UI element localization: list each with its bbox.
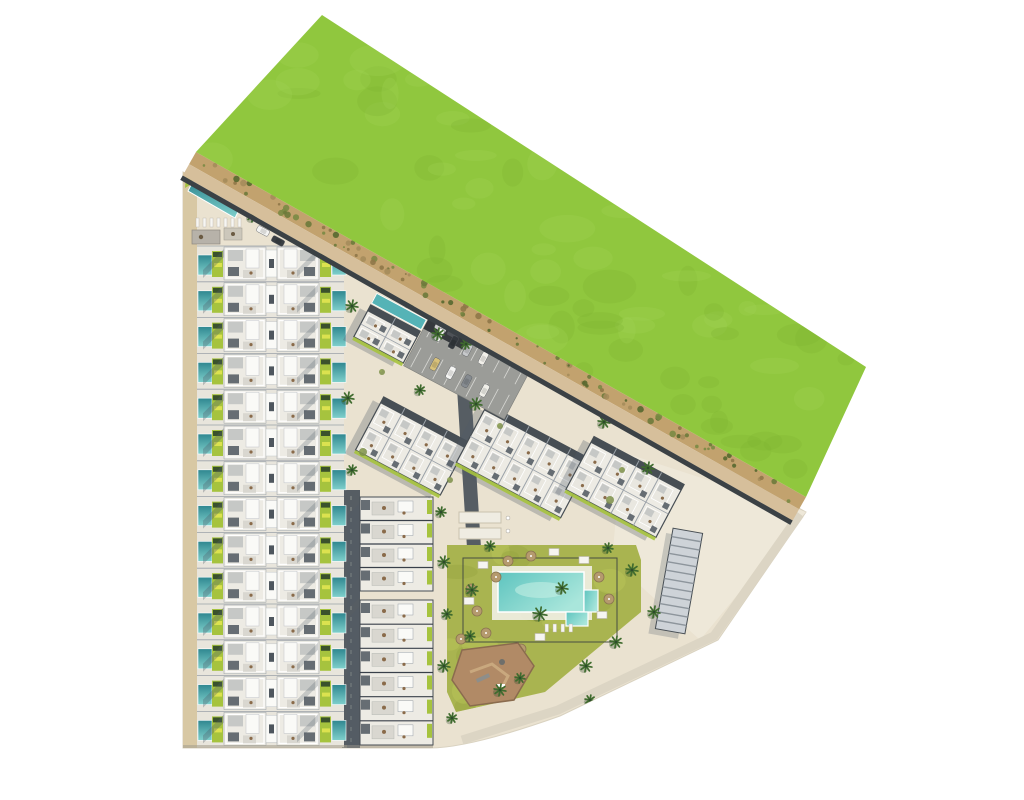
terrace	[243, 735, 256, 743]
roof-volume	[246, 679, 259, 698]
sun-lounger	[322, 370, 330, 374]
stair-core	[269, 295, 274, 304]
roof-volume	[246, 392, 259, 411]
palm-trunk	[443, 665, 446, 668]
palm-trunk	[585, 665, 588, 668]
terrace-furniture	[291, 271, 294, 274]
field-mottle	[711, 327, 739, 340]
palm-trunk	[471, 589, 474, 592]
shrub-speckle	[343, 246, 345, 248]
terrace-furniture	[382, 506, 386, 510]
table	[199, 235, 203, 239]
field-mottle	[502, 158, 523, 186]
field-mottle	[701, 396, 721, 413]
palm-trunk	[631, 569, 634, 572]
planter	[321, 359, 330, 364]
planter	[321, 574, 330, 579]
bush	[447, 477, 453, 483]
terrace-furniture	[402, 687, 405, 690]
townhouse-row	[197, 425, 346, 459]
field-mottle	[471, 253, 506, 285]
shrub-speckle	[685, 433, 689, 437]
townhouse-row	[197, 532, 346, 566]
shrub-speckle	[360, 256, 366, 262]
planted-edge	[427, 627, 432, 641]
west-footpath	[183, 172, 197, 748]
umbrella-pole	[530, 555, 532, 557]
cabana	[464, 598, 474, 605]
cabana	[549, 549, 559, 556]
roof-volume	[284, 392, 297, 411]
roof-dark-section	[228, 625, 239, 634]
townhouse-row	[197, 497, 346, 531]
roof-volume	[398, 501, 413, 512]
roof-volume	[398, 725, 413, 736]
roof-volume	[398, 604, 413, 615]
palm-trunk	[469, 635, 472, 638]
field-mottle	[527, 148, 557, 180]
roof-terrace-gray	[228, 250, 243, 261]
terrace-furniture	[291, 343, 294, 346]
terrace-furniture	[402, 663, 405, 666]
palm-trunk	[607, 547, 610, 550]
roof-volume	[398, 701, 413, 712]
umbrella-pole	[485, 632, 487, 634]
field-mottle	[838, 352, 855, 365]
roof-dark-section	[361, 627, 370, 637]
sun-lounger	[322, 335, 330, 339]
terrace-furniture	[249, 594, 252, 597]
terrace	[243, 306, 256, 314]
private-pool	[332, 362, 346, 382]
roof-terrace-gray	[228, 357, 243, 368]
terrace	[243, 700, 256, 708]
roof-terrace-gray	[228, 536, 243, 547]
sun-lounger	[553, 624, 557, 632]
roof-dark-section	[361, 547, 370, 557]
palm-trunk	[647, 467, 650, 470]
sun-lounger	[238, 218, 241, 227]
roof-volume	[246, 356, 259, 375]
roof-volume	[398, 525, 413, 536]
terrace-furniture	[249, 450, 252, 453]
roof-terrace-gray	[228, 501, 243, 512]
stair-core	[269, 689, 274, 698]
roof-volume	[246, 285, 259, 304]
field-mottle	[662, 270, 711, 281]
sun-lounger	[545, 624, 549, 632]
townhouse-row	[197, 461, 346, 495]
shrub-speckle	[598, 385, 602, 389]
terrace-furniture	[291, 701, 294, 704]
field-mottle	[601, 204, 646, 219]
pool-umbrella	[503, 556, 513, 566]
roof-volume	[398, 628, 413, 639]
roof-dark-section	[228, 589, 239, 598]
sun-lounger	[322, 478, 330, 482]
terrace	[243, 664, 256, 672]
private-pool	[332, 720, 346, 740]
terrace-furniture	[382, 633, 386, 637]
shrub-speckle	[405, 273, 407, 275]
sun-lounger	[322, 621, 330, 625]
field-mottle	[795, 324, 827, 354]
roof-dark-section	[361, 676, 370, 686]
terrace-furniture	[291, 629, 294, 632]
shrub-speckle	[759, 476, 763, 480]
roof-dark-section	[228, 518, 239, 527]
shrub-speckle	[401, 278, 405, 282]
terrace-furniture	[249, 486, 252, 489]
planted-edge	[427, 571, 432, 585]
townhouse-row	[197, 676, 346, 710]
umbrella-pole	[460, 638, 462, 640]
terrace-furniture	[402, 614, 405, 617]
seat	[506, 529, 510, 533]
townhouse-row	[197, 604, 346, 638]
field-mottle	[744, 304, 785, 315]
field-mottle	[698, 376, 719, 388]
planter	[321, 324, 330, 329]
pool-umbrella	[472, 606, 482, 616]
shrub-speckle	[244, 192, 248, 196]
townhouse-row	[197, 640, 346, 674]
shrub-speckle	[391, 266, 394, 269]
terrace-furniture	[382, 530, 386, 534]
roof-volume	[398, 548, 413, 559]
private-pool	[332, 327, 346, 347]
roof-terrace-gray	[228, 465, 243, 476]
stair-core	[269, 331, 274, 340]
shrub-speckle	[283, 211, 287, 215]
shrub-speckle	[423, 292, 429, 298]
umbrella-pole	[598, 576, 600, 578]
shrub-speckle	[487, 319, 491, 323]
shrub-speckle	[460, 312, 463, 315]
private-pool	[332, 470, 346, 490]
shrub-speckle	[475, 313, 481, 319]
terrace-furniture	[291, 594, 294, 597]
field-mottle	[740, 440, 771, 462]
roof-dark-section	[228, 446, 239, 455]
sun-lounger	[231, 218, 234, 227]
terrace-furniture	[249, 343, 252, 346]
bush-highlight	[607, 497, 610, 500]
shrub-speckle	[347, 248, 350, 251]
cast-shadow	[347, 606, 360, 764]
shrub-speckle	[603, 394, 609, 400]
pool-umbrella	[481, 628, 491, 638]
sun-lounger	[322, 299, 330, 303]
roof-volume	[246, 607, 259, 626]
planter	[321, 288, 330, 293]
field-mottle	[701, 418, 733, 435]
terrace	[243, 413, 256, 421]
shrub-speckle	[625, 399, 628, 402]
roof-dark-section	[228, 553, 239, 562]
field-mottle	[583, 270, 636, 304]
field-mottle	[455, 150, 497, 161]
shrub-speckle	[723, 456, 727, 460]
shrub-speckle	[225, 179, 227, 181]
palm-trunk	[603, 421, 606, 424]
field-mottle	[452, 197, 475, 209]
shrub-speckle	[695, 445, 699, 449]
townhouse-row	[197, 282, 346, 316]
table	[231, 232, 235, 236]
shrub-speckle	[346, 240, 351, 245]
roof-dark-section	[361, 651, 370, 661]
roof-terrace-gray	[228, 572, 243, 583]
palm-trunk	[653, 611, 656, 614]
roof-dark-section	[228, 410, 239, 419]
stair-core	[269, 617, 274, 626]
roof-dark-section	[228, 732, 239, 741]
roof-terrace-gray	[228, 644, 243, 655]
roof-volume	[246, 571, 259, 590]
planted-edge	[427, 524, 432, 538]
pergola	[192, 230, 220, 244]
roof-volume	[398, 652, 413, 663]
field-mottle	[530, 259, 561, 284]
terrace-furniture	[291, 450, 294, 453]
field-mottle	[532, 243, 556, 255]
palm-trunk	[437, 333, 440, 336]
palm-trunk	[539, 613, 542, 616]
palm-trunk	[440, 511, 443, 514]
roof-terrace-gray	[228, 429, 243, 440]
terrace-furniture	[291, 486, 294, 489]
terrace-furniture	[402, 558, 405, 561]
shrub-speckle	[567, 364, 569, 366]
terrace	[243, 592, 256, 600]
private-pool	[332, 649, 346, 669]
sun-lounger	[322, 693, 330, 697]
terrace	[243, 449, 256, 457]
planter	[321, 431, 330, 436]
terrace-furniture	[402, 711, 405, 714]
roof-volume	[284, 428, 297, 447]
roof-dark-section	[361, 500, 370, 510]
shrub-speckle	[628, 406, 632, 410]
palm-trunk	[446, 613, 449, 616]
terrace-furniture	[249, 737, 252, 740]
terrace-furniture	[402, 511, 405, 514]
shrub-speckle	[622, 402, 625, 405]
terrace-furniture	[291, 415, 294, 418]
palm-trunk	[351, 305, 354, 308]
stair-core	[269, 402, 274, 411]
roof-volume	[284, 571, 297, 590]
sun-lounger	[322, 549, 330, 553]
play-equipment	[499, 659, 505, 665]
planted-edge	[427, 603, 432, 617]
terrace-furniture	[249, 522, 252, 525]
field-mottle	[526, 325, 559, 340]
terrace-furniture	[382, 730, 386, 734]
sun-lounger	[224, 218, 227, 227]
shrub-speckle	[460, 306, 466, 312]
field-mottle	[451, 118, 491, 132]
planter	[321, 717, 330, 722]
roof-dark-section	[361, 571, 370, 581]
bush-highlight	[360, 449, 363, 452]
palm-trunk	[519, 677, 522, 680]
apartment-block	[347, 600, 433, 764]
stair-core	[269, 438, 274, 447]
sun-lounger	[322, 657, 330, 661]
stair-core	[269, 510, 274, 519]
sun-lounger	[569, 624, 573, 632]
stair-core	[269, 545, 274, 554]
roof-volume	[246, 535, 259, 554]
townhouse-row	[197, 389, 346, 423]
cabana	[579, 557, 589, 564]
shrub-speckle	[322, 226, 326, 230]
roof-volume	[246, 321, 259, 340]
cabana	[478, 562, 488, 569]
cast-shadow	[347, 503, 360, 610]
townhouse-row	[197, 353, 346, 387]
bush-highlight	[620, 468, 622, 470]
sun-lounger	[322, 442, 330, 446]
roof-terrace-gray	[228, 322, 243, 333]
palm-trunk	[475, 403, 478, 406]
sun-lounger	[210, 218, 213, 227]
terrace-furniture	[291, 522, 294, 525]
field-mottle	[429, 235, 446, 264]
field-mottle	[380, 198, 404, 230]
private-pool	[332, 685, 346, 705]
roof-dark-section	[228, 374, 239, 383]
shrub-speckle	[240, 180, 247, 187]
terrace-furniture	[249, 307, 252, 310]
shrub-speckle	[356, 246, 361, 251]
palm-trunk	[419, 389, 422, 392]
field-mottle	[529, 286, 570, 306]
roof-terrace-gray	[228, 680, 243, 691]
shrub-speckle	[704, 448, 707, 451]
field-mottle	[539, 215, 595, 243]
shrub-speckle	[567, 374, 570, 377]
roof-dark-section	[361, 724, 370, 734]
field-mottle	[704, 303, 724, 320]
terrace-furniture	[291, 665, 294, 668]
field-mottle	[750, 358, 799, 374]
planter	[321, 395, 330, 400]
planter	[321, 467, 330, 472]
planted-edge	[427, 700, 432, 714]
terrace	[243, 628, 256, 636]
sun-lounger	[322, 406, 330, 410]
roof-volume	[284, 356, 297, 375]
bush-highlight	[380, 370, 382, 372]
shrub-speckle	[582, 380, 587, 385]
shrub-speckle	[732, 464, 736, 468]
pool-umbrella	[526, 551, 536, 561]
roof-volume	[284, 679, 297, 698]
roof-terrace-gray	[228, 715, 243, 726]
shrub-speckle	[334, 244, 337, 247]
field-mottle	[277, 42, 319, 68]
field-mottle	[428, 162, 456, 175]
roof-dark-section	[228, 267, 239, 276]
umbrella-pole	[507, 560, 509, 562]
roof-volume	[284, 535, 297, 554]
roof-terrace-gray	[228, 286, 243, 297]
shrub-speckle	[333, 232, 339, 238]
shrub-speckle	[731, 459, 735, 463]
pool-umbrella	[604, 594, 614, 604]
shrub-speckle	[355, 254, 358, 257]
roof-volume	[246, 249, 259, 268]
terrace-furniture	[291, 737, 294, 740]
field-mottle	[670, 394, 695, 415]
shrub-speckle	[677, 434, 681, 438]
terrace-furniture	[382, 609, 386, 613]
terrace-furniture	[249, 271, 252, 274]
roof-dark-section	[228, 482, 239, 491]
pool-side-arm	[584, 590, 598, 612]
sun-lounger	[196, 218, 199, 227]
petanque-court	[459, 512, 501, 523]
cabana	[535, 634, 545, 641]
shrub-speckle	[711, 446, 715, 450]
field-mottle	[504, 280, 526, 313]
sun-lounger	[322, 514, 330, 518]
roof-volume	[284, 464, 297, 483]
shrub-speckle	[305, 221, 311, 227]
shrub-speckle	[516, 337, 518, 339]
stair-core	[269, 581, 274, 590]
terrace-furniture	[402, 582, 405, 585]
shrub-speckle	[487, 329, 490, 332]
field-mottle	[276, 68, 320, 95]
terrace-furniture	[291, 379, 294, 382]
terrace-furniture	[382, 553, 386, 557]
field-mottle	[573, 247, 613, 270]
terrace-furniture	[249, 629, 252, 632]
terrace-furniture	[291, 307, 294, 310]
roof-volume	[284, 500, 297, 519]
terrace	[243, 270, 256, 278]
palm-trunk	[489, 545, 492, 548]
roof-volume	[284, 607, 297, 626]
roof-volume	[246, 714, 259, 733]
shrub-speckle	[384, 268, 390, 274]
shrub-speckle	[707, 447, 710, 450]
planted-edge	[427, 724, 432, 738]
shrub-speckle	[516, 343, 519, 346]
private-pool	[332, 434, 346, 454]
field-mottle	[577, 321, 624, 335]
shrub-speckle	[322, 231, 325, 234]
stair-core	[269, 259, 274, 268]
bush-highlight	[498, 424, 500, 426]
shrub-speckle	[203, 164, 206, 167]
petanque-court	[459, 528, 501, 539]
planter	[321, 682, 330, 687]
shrub-speckle	[755, 469, 758, 472]
terrace-furniture	[382, 657, 386, 661]
private-pool	[332, 613, 346, 633]
roof-volume	[284, 249, 297, 268]
roof-volume	[284, 714, 297, 733]
terrace-furniture	[291, 558, 294, 561]
shrub-speckle	[329, 229, 332, 232]
shrub-speckle	[587, 375, 591, 379]
palm-trunk	[615, 641, 618, 644]
